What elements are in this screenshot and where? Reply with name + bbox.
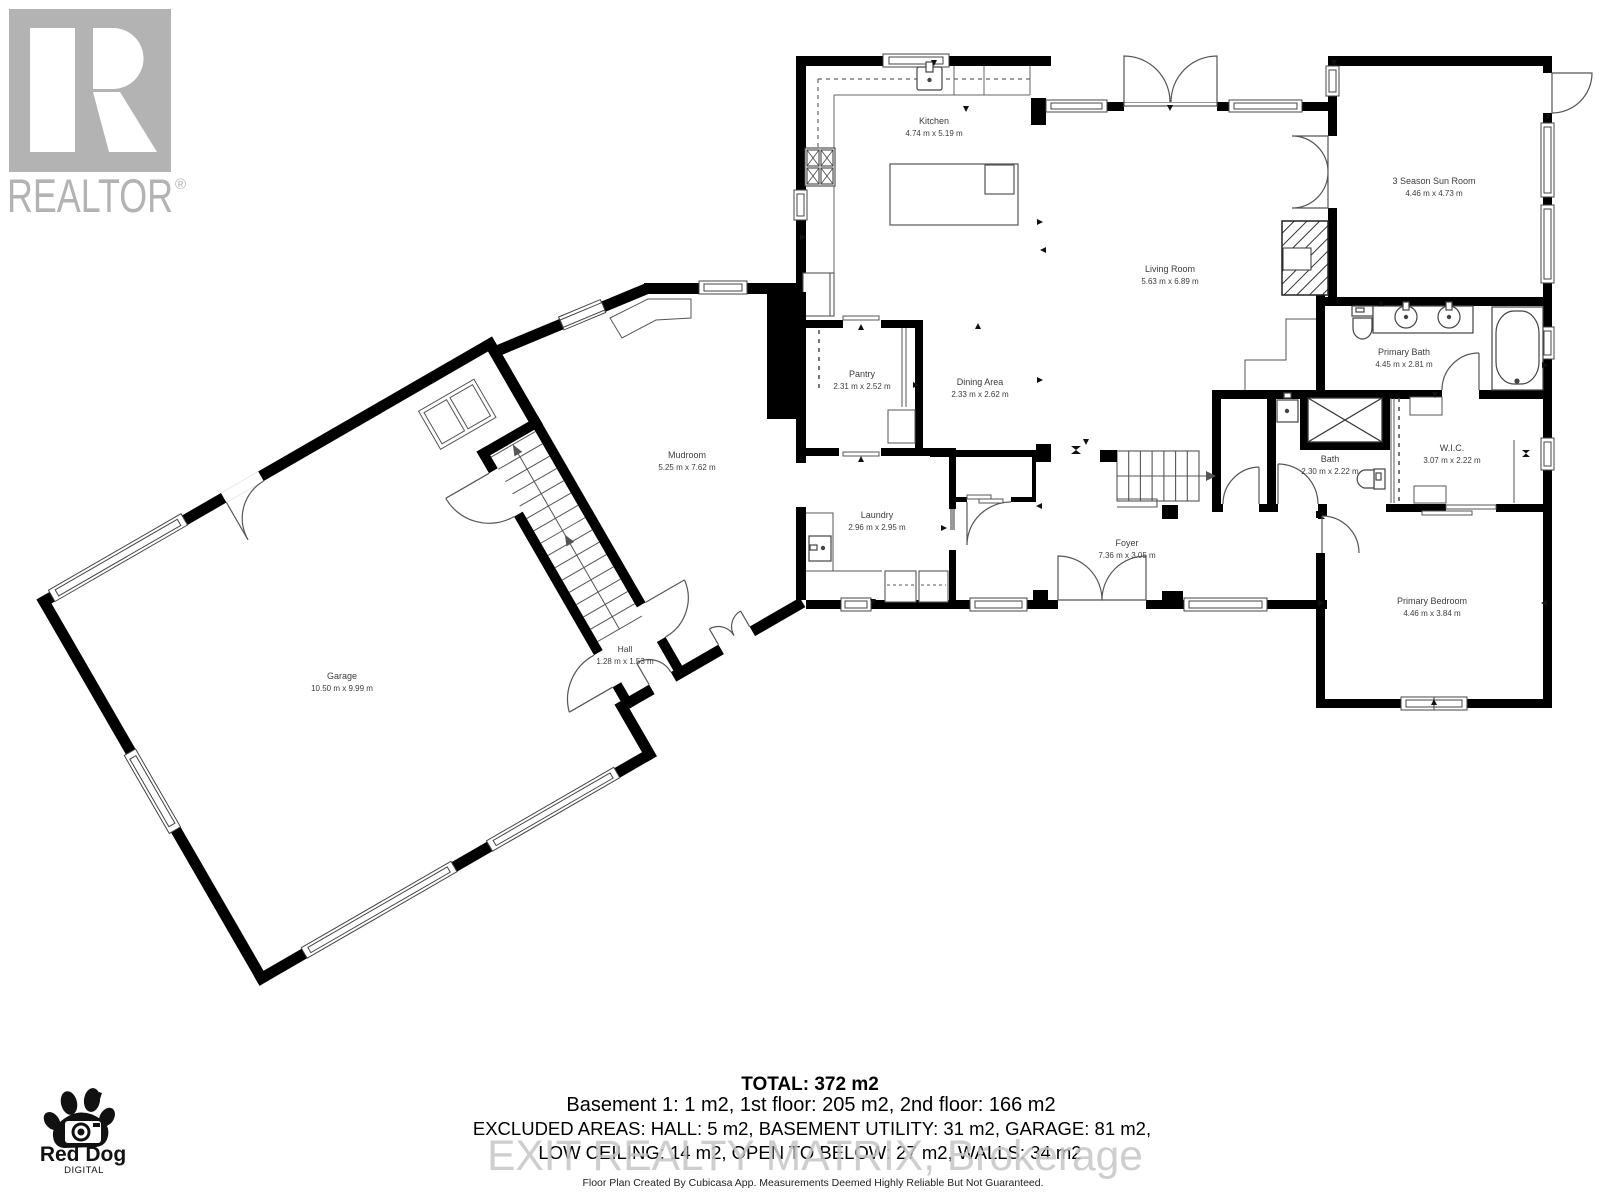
svg-text:Hall: Hall: [618, 644, 633, 654]
svg-text:REALTOR: REALTOR: [7, 169, 173, 222]
svg-text:Garage: Garage: [327, 671, 357, 681]
svg-text:Dining Area: Dining Area: [957, 377, 1004, 387]
svg-text:1.28 m x 1.53 m: 1.28 m x 1.53 m: [596, 657, 654, 666]
svg-text:2.30 m x 2.22 m: 2.30 m x 2.22 m: [1301, 467, 1359, 476]
svg-text:Living Room: Living Room: [1145, 264, 1195, 274]
svg-text:2.96 m x 2.95 m: 2.96 m x 2.95 m: [848, 523, 906, 532]
svg-text:Red Dog: Red Dog: [40, 1143, 126, 1166]
svg-text:3.07 m x 2.22 m: 3.07 m x 2.22 m: [1423, 456, 1481, 465]
svg-text:4.46 m x 4.73 m: 4.46 m x 4.73 m: [1405, 189, 1463, 198]
svg-text:DIGITAL: DIGITAL: [64, 1165, 104, 1176]
svg-text:Pantry: Pantry: [849, 369, 876, 379]
svg-text:2.33 m x 2.62 m: 2.33 m x 2.62 m: [951, 390, 1009, 399]
svg-text:4.74 m x 5.19 m: 4.74 m x 5.19 m: [905, 129, 963, 138]
svg-text:Basement 1: 1 m2, 1st floor: 2: Basement 1: 1 m2, 1st floor: 205 m2, 2nd…: [566, 1094, 1055, 1116]
svg-text:Mudroom: Mudroom: [668, 450, 706, 460]
svg-text:TOTAL: 372 m2: TOTAL: 372 m2: [741, 1074, 879, 1095]
svg-text:Bath: Bath: [1321, 454, 1340, 464]
svg-text:4.45 m x 2.81 m: 4.45 m x 2.81 m: [1375, 360, 1433, 369]
svg-text:Floor Plan Created By Cubicasa: Floor Plan Created By Cubicasa App. Meas…: [582, 1177, 1043, 1189]
svg-text:10.50 m x 9.99 m: 10.50 m x 9.99 m: [311, 684, 373, 693]
svg-text:®: ®: [175, 176, 186, 193]
svg-text:4.46 m x 3.84 m: 4.46 m x 3.84 m: [1403, 609, 1461, 618]
svg-text:Laundry: Laundry: [861, 510, 894, 520]
svg-text:7.36 m x 3.05 m: 7.36 m x 3.05 m: [1098, 551, 1156, 560]
svg-text:W.I.C.: W.I.C.: [1440, 443, 1465, 453]
svg-text:3 Season Sun Room: 3 Season Sun Room: [1392, 176, 1475, 186]
svg-text:5.63 m x 6.89 m: 5.63 m x 6.89 m: [1141, 277, 1199, 286]
svg-text:Primary Bath: Primary Bath: [1378, 347, 1430, 357]
svg-text:EXIT REALTY MATRIX, Brokerage: EXIT REALTY MATRIX, Brokerage: [487, 1133, 1143, 1180]
svg-text:Primary Bedroom: Primary Bedroom: [1397, 596, 1467, 606]
svg-text:5.25 m x 7.62 m: 5.25 m x 7.62 m: [658, 463, 716, 472]
svg-text:Foyer: Foyer: [1115, 538, 1138, 548]
svg-text:Kitchen: Kitchen: [919, 116, 949, 126]
svg-text:2.31 m x 2.52 m: 2.31 m x 2.52 m: [833, 382, 891, 391]
